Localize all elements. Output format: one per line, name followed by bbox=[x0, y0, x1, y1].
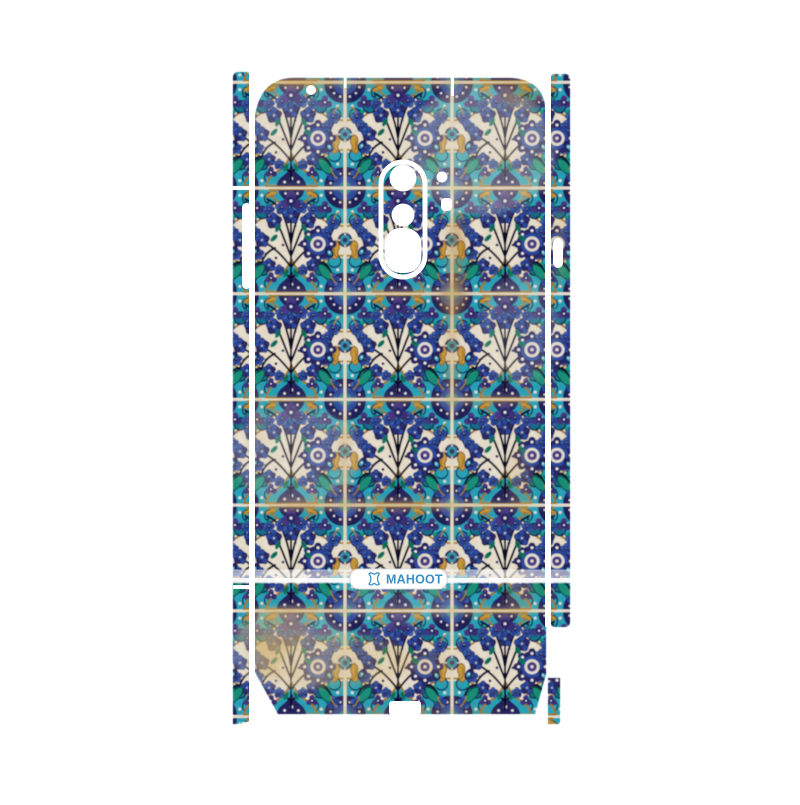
svg-text:MAHOOT: MAHOOT bbox=[386, 573, 443, 587]
